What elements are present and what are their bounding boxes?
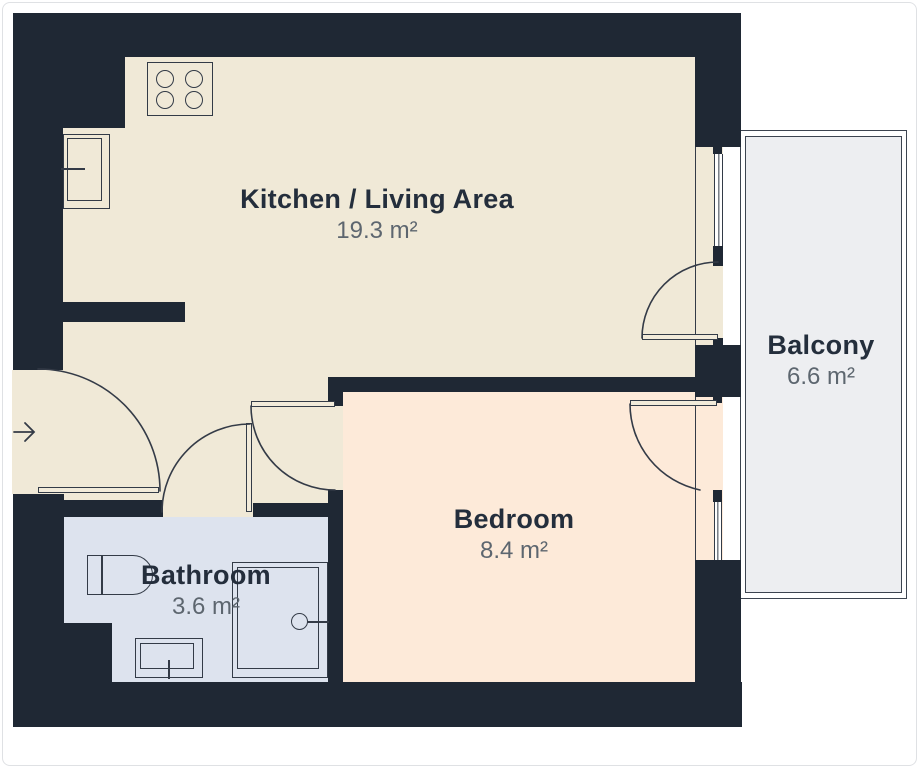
- floor-plan: Kitchen / Living Area 19.3 m² Bedroom 8.…: [0, 0, 919, 768]
- wall-bathroom-top-left: [63, 500, 163, 517]
- stove-icon: [147, 62, 213, 116]
- sink-inner-outline: [140, 643, 194, 669]
- wall-right-lower: [695, 560, 741, 682]
- wall-right-upper: [695, 13, 741, 147]
- room-name: Kitchen / Living Area: [240, 184, 514, 214]
- room-name: Balcony: [767, 330, 874, 360]
- bedroom-balcony-window: [714, 502, 722, 560]
- bathroom-label: Bathroom 3.6 m²: [141, 560, 271, 624]
- counter-handle-line: [61, 168, 85, 170]
- room-area: 8.4 m²: [454, 534, 575, 568]
- wall-kitchen-bedroom: [329, 377, 741, 392]
- wall-bathroom-top-right: [253, 503, 332, 517]
- wall-stub-kitchen: [62, 302, 185, 322]
- room-area: 3.6 m²: [141, 590, 271, 624]
- bathroom-door-leaf: [246, 423, 252, 512]
- bedroom-label: Bedroom 8.4 m²: [454, 504, 575, 568]
- room-area: 19.3 m²: [240, 214, 514, 248]
- shower-head-line: [307, 621, 329, 623]
- sink-icon: [135, 638, 203, 678]
- burner-icon: [185, 70, 203, 88]
- mullion-kitchen-window-bottom: [713, 246, 723, 266]
- burner-icon: [156, 70, 174, 88]
- hallway-floor: [63, 377, 329, 503]
- bedroom-opening-line: [695, 397, 696, 560]
- shower-drain-icon: [291, 613, 308, 630]
- kitchen-living-label: Kitchen / Living Area 19.3 m²: [240, 184, 514, 248]
- room-name: Bathroom: [141, 560, 271, 590]
- bedroom-door-leaf: [251, 401, 335, 407]
- kitchen-floor-main: [63, 128, 695, 377]
- kitchen-opening-line: [695, 147, 696, 345]
- bedroom-balcony-door-leaf: [630, 400, 717, 406]
- balcony-label: Balcony 6.6 m²: [767, 330, 874, 394]
- room-name: Bedroom: [454, 504, 575, 534]
- wall-hall-bedroom-lower: [328, 490, 343, 682]
- entry-floor: [12, 370, 63, 494]
- wall-left-lower: [13, 494, 64, 682]
- room-area: 6.6 m²: [767, 360, 874, 394]
- sink-drain-line: [168, 660, 170, 679]
- mullion-kitchen-window-top: [713, 147, 722, 154]
- counter-icon: [63, 134, 110, 209]
- wall-left-upper: [13, 13, 63, 370]
- wall-bathroom-notch: [63, 623, 112, 682]
- bedroom-doorway-floor: [329, 406, 343, 490]
- bathroom-doorway-floor: [163, 503, 253, 517]
- kitchen-balcony-door-leaf: [642, 334, 718, 340]
- wall-kitchen-corner-block: [62, 57, 125, 128]
- wall-top: [13, 13, 741, 57]
- burner-icon: [185, 91, 203, 109]
- burner-icon: [156, 91, 174, 109]
- window-pane-line: [718, 154, 719, 246]
- wall-bottom: [13, 682, 742, 727]
- mullion-bedroom-window-top: [713, 490, 722, 502]
- entry-door-leaf: [38, 487, 159, 493]
- window-pane-line: [717, 502, 718, 560]
- kitchen-balcony-window: [714, 154, 723, 246]
